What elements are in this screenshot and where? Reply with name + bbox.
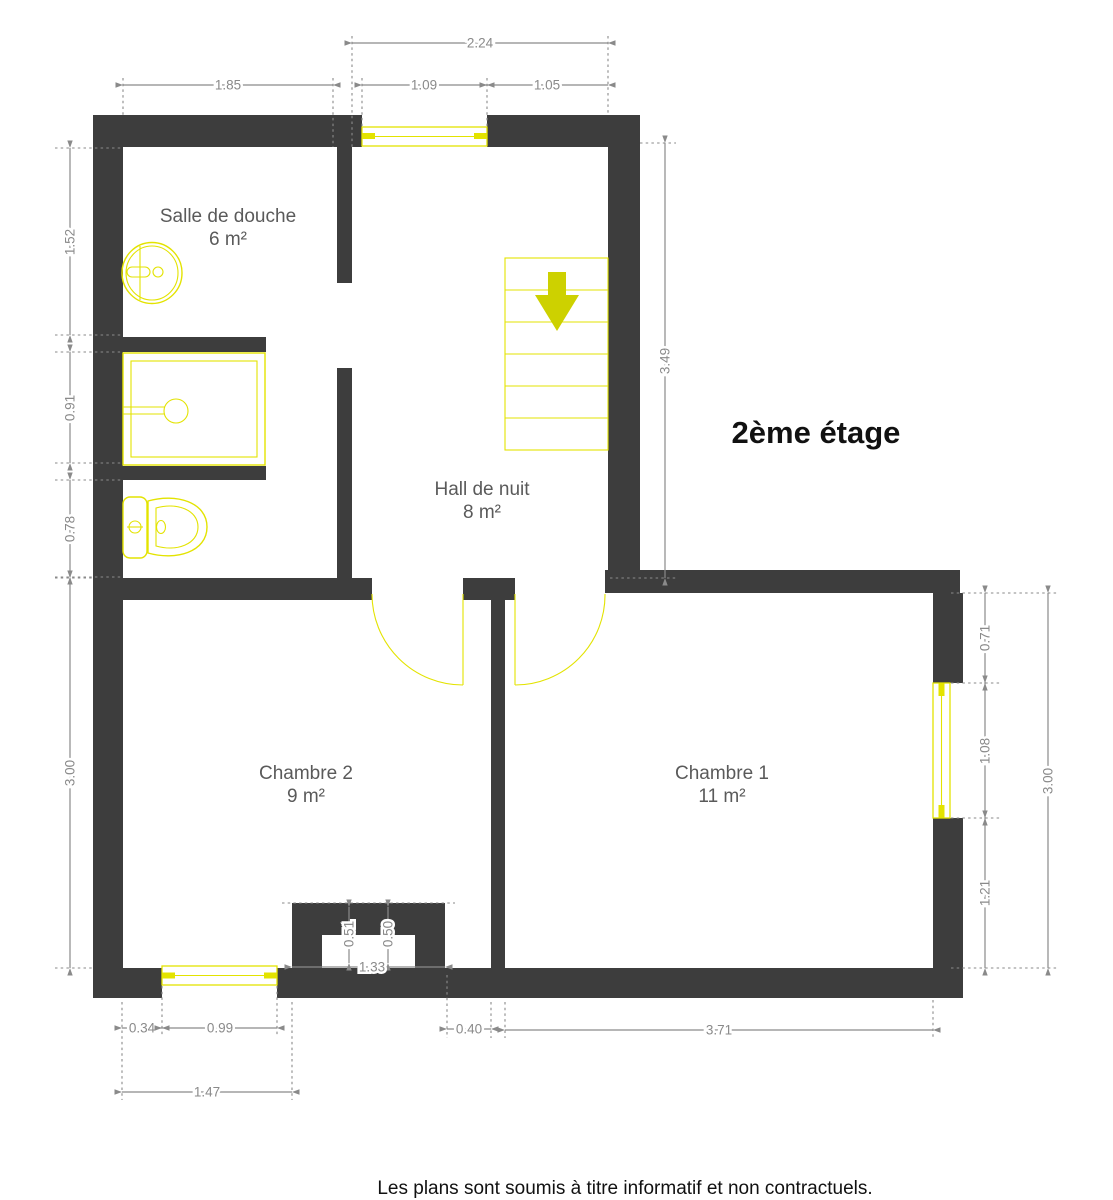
labels: Salle de douche 6 m² Hall de nuit 8 m² C… <box>160 206 901 1199</box>
wall-bathroom-hall-upper <box>337 147 352 283</box>
dim-label: 1.05 <box>534 78 560 93</box>
dim-hall-right-width: 1.05 <box>487 78 608 93</box>
room-label-hall-de-nuit: Hall de nuit <box>434 479 530 500</box>
dim-label: 1.47 <box>194 1085 220 1100</box>
wall-bathroom-hall-lower <box>337 368 352 578</box>
dim-label: 0.40 <box>456 1022 482 1037</box>
staircase <box>505 258 608 450</box>
windows <box>162 127 950 985</box>
niche-wall-top <box>292 903 445 935</box>
wall-top-left <box>93 115 362 147</box>
wall-mid-left <box>93 578 372 600</box>
wall-mid-center <box>463 578 515 600</box>
dim-hall-window-width: 1.09 <box>362 78 487 127</box>
door-chambre2 <box>372 594 463 685</box>
dim-label: 1.52 <box>63 229 78 255</box>
room-area-salle-de-douche: 6 m² <box>209 229 247 250</box>
dim-label: 0.78 <box>63 516 78 542</box>
wall-chambre-divider <box>491 600 505 968</box>
dim-chambre1-depth: 3.00 <box>1041 593 1056 968</box>
dim-label: 0.91 <box>63 395 78 421</box>
wall-bottom-left <box>93 968 162 998</box>
dim-label: 2.24 <box>467 36 494 51</box>
wall-right-upper <box>933 593 963 683</box>
wall-left <box>93 115 123 998</box>
door-chambre1 <box>515 594 605 685</box>
dim-chambre2-wall-left-of-window: 0.34 <box>122 986 162 1100</box>
dim-chambre1-window-width: 1.08 <box>951 683 1000 818</box>
dim-label: 3.00 <box>63 760 78 786</box>
dim-chambre1-wall-above-window: 0.71 <box>951 593 1058 683</box>
dim-chambre2-depth: 3.00 <box>55 578 93 968</box>
dimensions: 2.24 1.85 1.09 1.05 1.52 <box>55 36 1058 1100</box>
dim-chambre1-wall-below-window: 1.21 <box>951 818 1058 968</box>
dim-chambre2-window-width: 0.99 <box>162 986 277 1036</box>
washbasin-icon <box>122 243 182 304</box>
room-label-chambre-2: Chambre 2 <box>259 763 353 784</box>
toilet-icon <box>123 497 207 558</box>
dim-label: 3.71 <box>706 1023 732 1038</box>
dim-label: 3.49 <box>658 348 673 374</box>
dim-label: 3.00 <box>1041 768 1056 794</box>
dim-chambre2-left-total: 1.47 <box>122 1002 292 1100</box>
dim-label: 0.50 <box>381 921 396 947</box>
wall-chambre1-top <box>605 570 960 593</box>
wall-stub-shower-wc <box>123 466 266 480</box>
dim-label: 0.51 <box>342 921 357 947</box>
doors <box>372 594 605 685</box>
room-area-hall-de-nuit: 8 m² <box>463 502 501 523</box>
room-area-chambre-1: 11 m² <box>698 786 745 807</box>
window-chambre1-right <box>933 683 950 818</box>
dim-label: 1.09 <box>411 78 437 93</box>
dim-label: 1.33 <box>359 960 385 975</box>
shower-tray-icon <box>123 353 265 465</box>
dim-chambre1-width: 3.71 <box>505 1000 933 1038</box>
room-label-chambre-1: Chambre 1 <box>675 763 769 784</box>
floor-plan: 2.24 1.85 1.09 1.05 1.52 <box>0 0 1113 1200</box>
wall-stub-sink-shower <box>123 337 266 352</box>
floor-plan-svg: 2.24 1.85 1.09 1.05 1.52 <box>0 0 1113 1200</box>
fixtures <box>122 243 265 559</box>
room-area-chambre-2: 9 m² <box>287 786 325 807</box>
dim-label: 0.99 <box>207 1021 233 1036</box>
dim-label: 0.71 <box>978 625 993 651</box>
dim-label: 1.08 <box>978 738 993 764</box>
dim-label: 1.21 <box>978 880 993 906</box>
wall-hall-right <box>608 115 640 578</box>
wall-right-lower <box>933 818 963 998</box>
dim-label: 0.34 <box>129 1021 156 1036</box>
window-chambre2-bottom <box>162 966 277 985</box>
room-label-salle-de-douche: Salle de douche <box>160 206 296 227</box>
dim-label: 1.85 <box>215 78 241 93</box>
footer-disclaimer: Les plans sont soumis à titre informatif… <box>377 1178 872 1199</box>
page-title: 2ème étage <box>732 415 901 450</box>
window-hall-top <box>362 127 487 146</box>
